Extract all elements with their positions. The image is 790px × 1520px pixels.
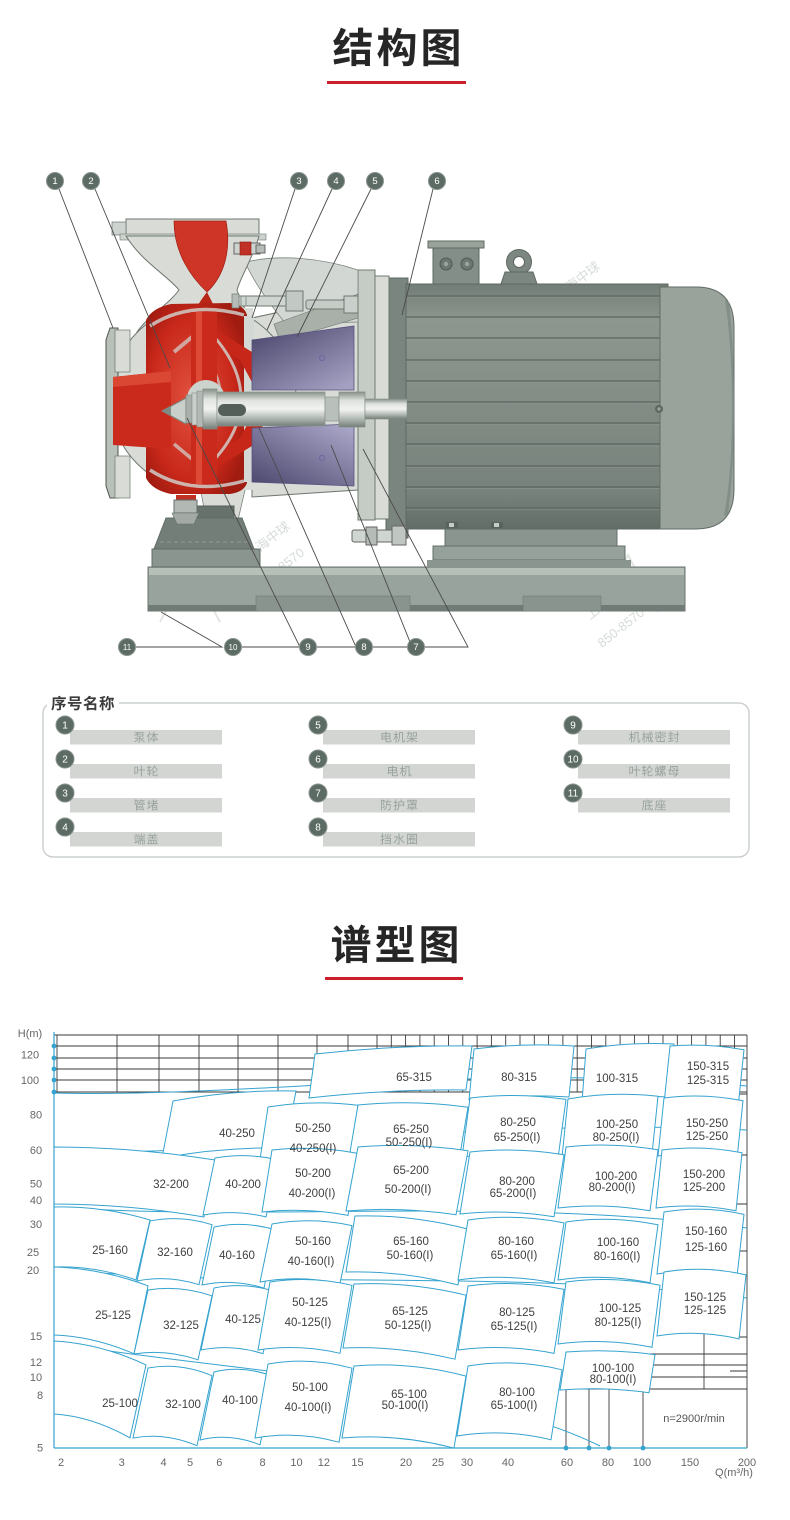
svg-text:10: 10: [290, 1457, 302, 1469]
svg-text:80-315: 80-315: [501, 1072, 537, 1084]
svg-text:65-160(I): 65-160(I): [491, 1250, 538, 1262]
svg-text:80: 80: [602, 1457, 614, 1469]
svg-text:65-100(I): 65-100(I): [491, 1400, 538, 1412]
svg-text:4: 4: [160, 1457, 166, 1469]
svg-text:40-100: 40-100: [222, 1395, 258, 1407]
svg-text:15: 15: [30, 1331, 42, 1343]
svg-text:40-125(I): 40-125(I): [285, 1317, 332, 1329]
svg-text:30: 30: [30, 1219, 42, 1231]
svg-text:150-200: 150-200: [683, 1169, 725, 1181]
svg-text:25: 25: [27, 1247, 39, 1259]
svg-text:20: 20: [400, 1457, 412, 1469]
svg-text:80-200(I): 80-200(I): [589, 1182, 636, 1194]
svg-text:100: 100: [633, 1457, 651, 1469]
svg-text:150: 150: [681, 1457, 699, 1469]
svg-text:80: 80: [30, 1109, 42, 1121]
svg-text:80-125: 80-125: [499, 1307, 535, 1319]
svg-text:80-100(I): 80-100(I): [590, 1374, 637, 1386]
svg-text:80-200: 80-200: [499, 1176, 535, 1188]
svg-text:3: 3: [119, 1457, 125, 1469]
svg-text:40-250(I): 40-250(I): [290, 1143, 337, 1155]
svg-text:100: 100: [21, 1075, 39, 1087]
svg-text:125-160: 125-160: [685, 1242, 727, 1254]
svg-text:40-160(I): 40-160(I): [288, 1256, 335, 1268]
svg-text:32-200: 32-200: [153, 1179, 189, 1191]
svg-text:80-160(I): 80-160(I): [594, 1251, 641, 1263]
svg-text:H(m): H(m): [18, 1028, 42, 1040]
svg-text:125-200: 125-200: [683, 1182, 725, 1194]
svg-text:50-160: 50-160: [295, 1236, 331, 1248]
svg-text:125-250: 125-250: [686, 1131, 728, 1143]
svg-text:60: 60: [30, 1145, 42, 1157]
svg-text:65-160: 65-160: [393, 1236, 429, 1248]
svg-text:100-160: 100-160: [597, 1237, 639, 1249]
svg-text:8: 8: [260, 1457, 266, 1469]
svg-text:65-250(I): 65-250(I): [494, 1132, 541, 1144]
svg-text:80-250: 80-250: [500, 1117, 536, 1129]
svg-text:40: 40: [30, 1195, 42, 1207]
svg-text:80-100: 80-100: [499, 1387, 535, 1399]
svg-text:50: 50: [30, 1179, 42, 1191]
svg-text:25-160: 25-160: [92, 1245, 128, 1257]
svg-text:100-125: 100-125: [599, 1303, 641, 1315]
svg-text:32-160: 32-160: [157, 1247, 193, 1259]
svg-text:60: 60: [561, 1457, 573, 1469]
svg-text:120: 120: [21, 1050, 39, 1062]
svg-text:125-315: 125-315: [687, 1075, 729, 1087]
svg-text:5: 5: [187, 1457, 193, 1469]
svg-text:40-100(I): 40-100(I): [285, 1402, 332, 1414]
svg-text:2: 2: [58, 1457, 64, 1469]
svg-text:65-200(I): 65-200(I): [490, 1188, 537, 1200]
svg-text:80-125(I): 80-125(I): [595, 1317, 642, 1329]
svg-text:30: 30: [461, 1457, 473, 1469]
svg-text:25-125: 25-125: [95, 1310, 131, 1322]
svg-text:25-100: 25-100: [102, 1398, 138, 1410]
svg-text:65-125(I): 65-125(I): [491, 1321, 538, 1333]
svg-text:25: 25: [432, 1457, 444, 1469]
svg-text:80-160: 80-160: [498, 1236, 534, 1248]
svg-text:150-160: 150-160: [685, 1226, 727, 1238]
svg-text:Q(m³/h): Q(m³/h): [715, 1467, 753, 1479]
svg-text:40-200: 40-200: [225, 1179, 261, 1191]
svg-text:150-250: 150-250: [686, 1118, 728, 1130]
svg-text:50-125: 50-125: [292, 1297, 328, 1309]
svg-text:100-250: 100-250: [596, 1119, 638, 1131]
svg-text:65-125: 65-125: [392, 1306, 428, 1318]
svg-text:40: 40: [502, 1457, 514, 1469]
svg-text:150-315: 150-315: [687, 1061, 729, 1073]
svg-text:40-250: 40-250: [219, 1128, 255, 1140]
svg-text:50-250(I): 50-250(I): [386, 1137, 433, 1149]
svg-text:12: 12: [30, 1357, 42, 1369]
svg-text:65-250: 65-250: [393, 1124, 429, 1136]
svg-text:50-100: 50-100: [292, 1382, 328, 1394]
svg-text:40-125: 40-125: [225, 1314, 261, 1326]
svg-text:5: 5: [37, 1443, 43, 1455]
svg-text:50-100(I): 50-100(I): [382, 1400, 429, 1412]
svg-text:6: 6: [216, 1457, 222, 1469]
svg-text:80-250(I): 80-250(I): [593, 1132, 640, 1144]
svg-text:n=2900r/min: n=2900r/min: [663, 1413, 724, 1425]
svg-text:100-315: 100-315: [596, 1073, 638, 1085]
svg-text:40-160: 40-160: [219, 1250, 255, 1262]
svg-text:65-200: 65-200: [393, 1165, 429, 1177]
svg-text:50-250: 50-250: [295, 1123, 331, 1135]
svg-text:150-125: 150-125: [684, 1292, 726, 1304]
svg-text:32-100: 32-100: [165, 1399, 201, 1411]
svg-text:20: 20: [27, 1265, 39, 1277]
svg-text:50-200(I): 50-200(I): [385, 1184, 432, 1196]
svg-text:10: 10: [30, 1372, 42, 1384]
svg-text:15: 15: [351, 1457, 363, 1469]
svg-text:32-125: 32-125: [163, 1320, 199, 1332]
svg-text:50-200: 50-200: [295, 1168, 331, 1180]
svg-text:50-125(I): 50-125(I): [385, 1320, 432, 1332]
svg-text:125-125: 125-125: [684, 1305, 726, 1317]
svg-text:65-315: 65-315: [396, 1072, 432, 1084]
svg-text:8: 8: [37, 1390, 43, 1402]
svg-text:40-200(I): 40-200(I): [289, 1188, 336, 1200]
svg-text:12: 12: [318, 1457, 330, 1469]
svg-text:50-160(I): 50-160(I): [387, 1250, 434, 1262]
